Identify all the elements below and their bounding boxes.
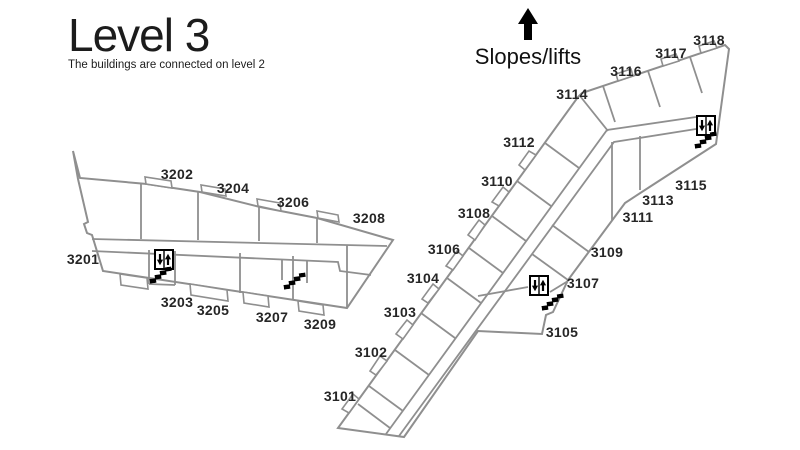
room-label: 3115	[675, 177, 707, 193]
west-building	[73, 151, 393, 315]
room-label: 3118	[693, 32, 725, 48]
room-label: 3108	[458, 205, 490, 221]
room-label: 3209	[304, 316, 336, 332]
room-label: 3114	[556, 86, 588, 102]
room-label: 3117	[655, 45, 687, 61]
room-label: 3112	[503, 134, 535, 150]
room-label: 3110	[481, 173, 513, 189]
room-label: 3107	[567, 275, 599, 291]
room-label: 3113	[642, 192, 674, 208]
elevator-icon	[529, 275, 549, 296]
room-label: 3101	[324, 388, 356, 404]
room-label: 3206	[277, 194, 309, 210]
east-building-outline	[338, 45, 729, 437]
room-label: 3203	[161, 294, 193, 310]
room-label: 3207	[256, 309, 288, 325]
room-label: 3105	[546, 324, 578, 340]
room-label: 3202	[161, 166, 193, 182]
floor-plan-page: Level 3 The buildings are connected on l…	[0, 0, 800, 450]
room-label: 3109	[591, 244, 623, 260]
room-label: 3103	[384, 304, 416, 320]
room-label: 3208	[353, 210, 385, 226]
room-label: 3201	[67, 251, 99, 267]
room-label: 3111	[623, 209, 654, 225]
room-label: 3104	[407, 270, 439, 286]
east-building	[338, 41, 729, 437]
floor-plan-svg	[0, 0, 800, 450]
room-label: 3205	[197, 302, 229, 318]
room-label: 3106	[428, 241, 460, 257]
room-label: 3102	[355, 344, 387, 360]
room-label: 3116	[610, 63, 642, 79]
room-label: 3204	[217, 180, 249, 196]
